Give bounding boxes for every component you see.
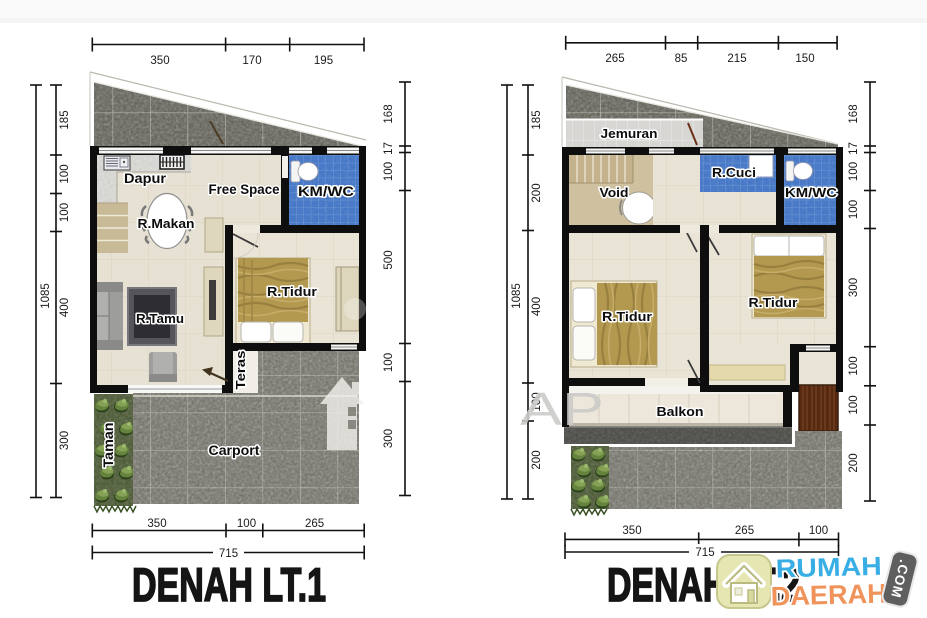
svg-text:DAERAH: DAERAH xyxy=(770,579,887,612)
svg-text:265: 265 xyxy=(735,525,754,537)
svg-text:R.Cuci: R.Cuci xyxy=(712,165,756,180)
svg-text:350: 350 xyxy=(622,525,641,537)
svg-text:R.Makan: R.Makan xyxy=(138,216,195,231)
svg-text:17: 17 xyxy=(383,142,395,155)
svg-text:100: 100 xyxy=(383,162,395,181)
svg-text:100: 100 xyxy=(848,200,860,219)
svg-text:100: 100 xyxy=(809,525,828,537)
svg-text:500: 500 xyxy=(383,250,395,269)
svg-text:350: 350 xyxy=(147,518,166,530)
svg-text:300: 300 xyxy=(848,278,860,297)
svg-text:Void: Void xyxy=(600,185,629,200)
svg-text:100: 100 xyxy=(59,164,71,183)
svg-text:350: 350 xyxy=(150,55,169,67)
svg-text:100: 100 xyxy=(383,353,395,372)
svg-text:DENAH LT.1: DENAH LT.1 xyxy=(132,558,326,611)
svg-text:100: 100 xyxy=(848,162,860,181)
svg-text:168: 168 xyxy=(383,104,395,123)
svg-text:200: 200 xyxy=(531,183,543,202)
svg-text:195: 195 xyxy=(314,55,333,67)
svg-text:Dapur: Dapur xyxy=(124,171,167,186)
svg-text:Free Space: Free Space xyxy=(209,182,280,197)
svg-text:Jemuran: Jemuran xyxy=(601,127,658,141)
svg-text:300: 300 xyxy=(59,431,71,450)
svg-text:170: 170 xyxy=(242,55,261,67)
svg-text:R.Tidur: R.Tidur xyxy=(602,309,652,324)
svg-text:185: 185 xyxy=(531,110,543,129)
svg-text:Balkon: Balkon xyxy=(657,404,704,419)
svg-text:185: 185 xyxy=(59,110,71,129)
svg-text:400: 400 xyxy=(59,298,71,317)
svg-text:Teras: Teras xyxy=(233,351,248,390)
svg-text:R.Tamu: R.Tamu xyxy=(136,311,184,326)
svg-text:265: 265 xyxy=(605,53,624,65)
svg-text:KM/WC: KM/WC xyxy=(785,185,838,200)
svg-text:17: 17 xyxy=(848,142,860,155)
svg-text:265: 265 xyxy=(305,518,324,530)
svg-text:85: 85 xyxy=(675,53,688,65)
svg-text:168: 168 xyxy=(848,104,860,123)
svg-text:R.Tidur: R.Tidur xyxy=(267,284,317,299)
svg-text:Carport: Carport xyxy=(209,442,260,458)
svg-text:1085: 1085 xyxy=(511,283,523,309)
svg-text:100: 100 xyxy=(59,203,71,222)
svg-text:400: 400 xyxy=(531,297,543,316)
svg-text:200: 200 xyxy=(848,453,860,472)
svg-text:Taman: Taman xyxy=(101,423,116,468)
svg-text:KM/WC: KM/WC xyxy=(298,184,354,199)
svg-text:100: 100 xyxy=(848,356,860,375)
svg-text:215: 215 xyxy=(727,53,746,65)
svg-text:AP: AP xyxy=(520,383,604,435)
svg-text:R.Tidur: R.Tidur xyxy=(749,295,798,310)
svg-text:200: 200 xyxy=(531,450,543,469)
svg-text:150: 150 xyxy=(795,53,814,65)
svg-text:300: 300 xyxy=(383,429,395,448)
svg-text:100: 100 xyxy=(237,518,256,530)
svg-text:1085: 1085 xyxy=(40,283,52,309)
svg-text:100: 100 xyxy=(848,395,860,414)
